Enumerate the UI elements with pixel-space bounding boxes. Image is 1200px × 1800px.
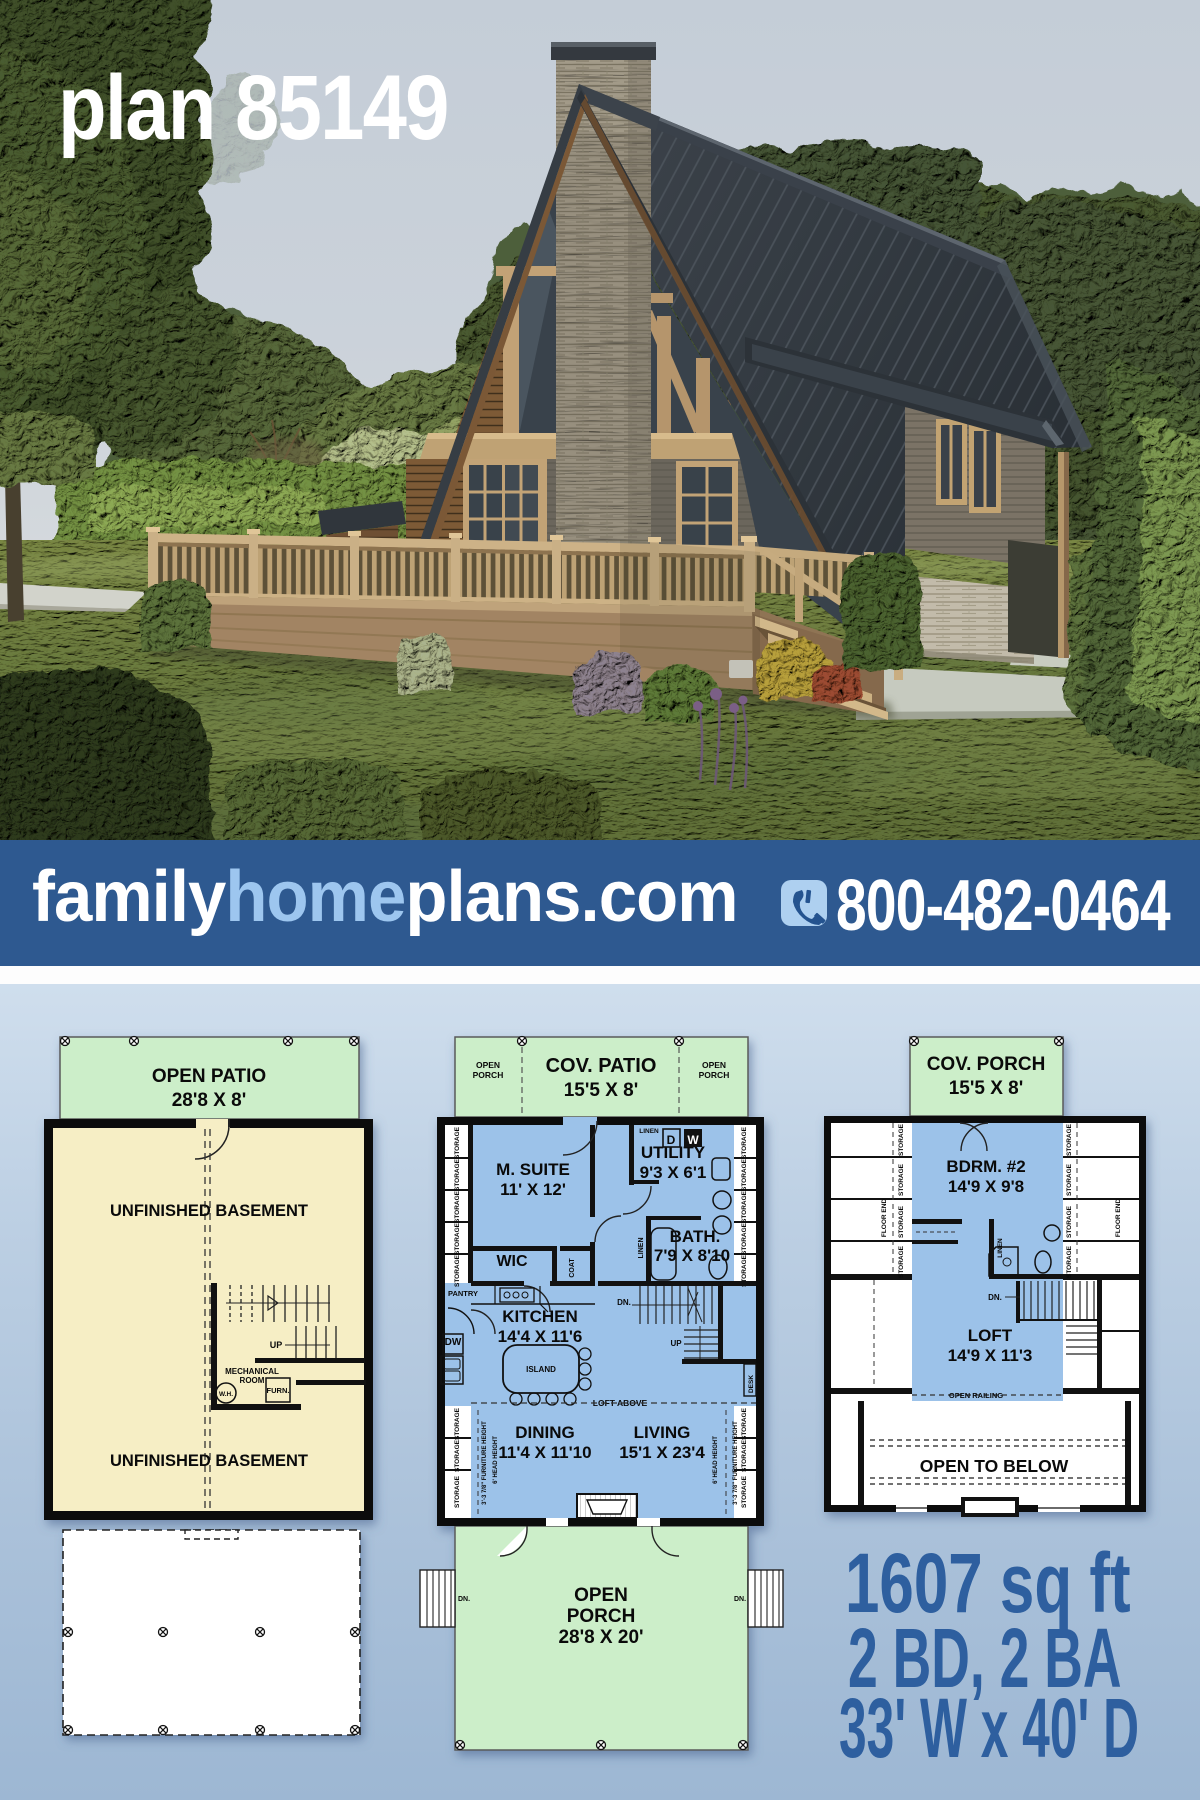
svg-text:STORAGE: STORAGE [741, 1158, 748, 1191]
svg-text:STORAGE: STORAGE [898, 1245, 905, 1278]
svg-text:COV. PORCH: COV. PORCH [927, 1054, 1046, 1075]
svg-text:STORAGE: STORAGE [454, 1126, 461, 1159]
svg-text:DW: DW [445, 1337, 462, 1348]
svg-text:DN.: DN. [458, 1596, 470, 1603]
svg-text:OPEN: OPEN [702, 1060, 726, 1070]
svg-text:LOFT: LOFT [968, 1326, 1013, 1345]
svg-text:DESK: DESK [748, 1375, 755, 1393]
svg-text:STORAGE: STORAGE [741, 1190, 748, 1223]
svg-text:FLOOR END: FLOOR END [881, 1199, 888, 1238]
svg-text:LINEN: LINEN [638, 1238, 645, 1259]
svg-text:M. SUITE: M. SUITE [496, 1160, 570, 1179]
svg-text:FURN.: FURN. [267, 1386, 290, 1395]
svg-text:STORAGE: STORAGE [454, 1439, 461, 1472]
svg-text:15'5 X 8': 15'5 X 8' [949, 1078, 1024, 1099]
svg-text:LIVING: LIVING [634, 1423, 691, 1442]
svg-text:DN.: DN. [988, 1293, 1002, 1302]
svg-text:W.H.: W.H. [219, 1391, 233, 1398]
svg-text:ISLAND: ISLAND [526, 1365, 556, 1374]
svg-text:FLOOR END: FLOOR END [1115, 1199, 1122, 1238]
svg-text:STORAGE: STORAGE [898, 1205, 905, 1238]
svg-text:OPEN: OPEN [476, 1060, 500, 1070]
svg-text:PORCH: PORCH [567, 1606, 636, 1627]
svg-text:ROOM: ROOM [240, 1376, 265, 1385]
svg-text:STORAGE: STORAGE [1066, 1163, 1073, 1196]
svg-text:14'9 X 9'8: 14'9 X 9'8 [948, 1177, 1024, 1196]
svg-text:STORAGE: STORAGE [898, 1163, 905, 1196]
svg-text:STORAGE: STORAGE [454, 1190, 461, 1223]
svg-text:OPEN RAILING: OPEN RAILING [949, 1391, 1003, 1400]
svg-text:UNFINISHED BASEMENT: UNFINISHED BASEMENT [110, 1202, 308, 1220]
svg-text:STORAGE: STORAGE [1066, 1245, 1073, 1278]
svg-text:PANTRY: PANTRY [448, 1289, 478, 1298]
svg-text:OPEN: OPEN [574, 1585, 628, 1606]
svg-text:PORCH: PORCH [473, 1070, 504, 1080]
svg-text:STORAGE: STORAGE [741, 1222, 748, 1255]
svg-text:STORAGE: STORAGE [741, 1407, 748, 1440]
svg-text:6' HEAD HEIGHT: 6' HEAD HEIGHT [713, 1436, 719, 1484]
svg-text:STORAGE: STORAGE [1066, 1123, 1073, 1156]
svg-text:STORAGE: STORAGE [454, 1254, 461, 1287]
svg-text:MECHANICAL: MECHANICAL [225, 1367, 279, 1376]
svg-text:UP: UP [270, 1340, 283, 1350]
svg-text:COV. PATIO: COV. PATIO [546, 1055, 657, 1077]
svg-text:UNFINISHED BASEMENT: UNFINISHED BASEMENT [110, 1452, 308, 1470]
svg-text:OPEN TO BELOW: OPEN TO BELOW [920, 1456, 1069, 1476]
svg-text:9'3 X 6'1: 9'3 X 6'1 [640, 1163, 707, 1182]
svg-text:W: W [687, 1133, 699, 1147]
svg-text:STORAGE: STORAGE [898, 1123, 905, 1156]
svg-text:STORAGE: STORAGE [1066, 1205, 1073, 1238]
svg-text:11'4 X 11'10: 11'4 X 11'10 [498, 1443, 591, 1462]
svg-text:STORAGE: STORAGE [454, 1158, 461, 1191]
svg-text:14'4 X 11'6: 14'4 X 11'6 [498, 1327, 583, 1346]
svg-text:STORAGE: STORAGE [741, 1475, 748, 1508]
svg-text:STORAGE: STORAGE [741, 1439, 748, 1472]
svg-text:PORCH: PORCH [699, 1070, 730, 1080]
svg-text:LINEN: LINEN [639, 1128, 659, 1135]
svg-text:LOFT ABOVE: LOFT ABOVE [593, 1398, 648, 1408]
svg-text:LINEN: LINEN [997, 1238, 1004, 1258]
svg-text:WIC: WIC [496, 1253, 528, 1270]
svg-text:OPEN PATIO: OPEN PATIO [152, 1066, 266, 1087]
svg-text:DN.: DN. [617, 1298, 631, 1307]
svg-text:3'-3 7/8" FURNITURE HEIGHT: 3'-3 7/8" FURNITURE HEIGHT [482, 1421, 488, 1505]
svg-text:DINING: DINING [515, 1423, 575, 1442]
svg-text:UP: UP [670, 1339, 682, 1348]
svg-text:6' HEAD HEIGHT: 6' HEAD HEIGHT [493, 1436, 499, 1484]
svg-text:STORAGE: STORAGE [454, 1407, 461, 1440]
svg-text:DN.: DN. [734, 1596, 746, 1603]
svg-text:KITCHEN: KITCHEN [502, 1307, 578, 1326]
svg-text:COAT: COAT [569, 1258, 576, 1278]
svg-text:STORAGE: STORAGE [741, 1126, 748, 1159]
svg-text:15'1 X 23'4: 15'1 X 23'4 [619, 1443, 705, 1462]
svg-text:BATH.: BATH. [670, 1227, 721, 1246]
svg-text:11' X 12': 11' X 12' [500, 1180, 566, 1199]
svg-text:STORAGE: STORAGE [454, 1222, 461, 1255]
svg-text:28'8 X 20': 28'8 X 20' [558, 1627, 643, 1648]
svg-text:D: D [667, 1133, 676, 1147]
svg-text:28'8 X 8': 28'8 X 8' [172, 1090, 247, 1111]
svg-text:3'-3 7/8" FURNITURE HEIGHT: 3'-3 7/8" FURNITURE HEIGHT [733, 1421, 739, 1505]
svg-text:STORAGE: STORAGE [454, 1475, 461, 1508]
svg-text:15'5 X 8': 15'5 X 8' [564, 1080, 639, 1101]
svg-text:14'9 X 11'3: 14'9 X 11'3 [948, 1346, 1033, 1365]
svg-text:BDRM. #2: BDRM. #2 [946, 1157, 1025, 1176]
